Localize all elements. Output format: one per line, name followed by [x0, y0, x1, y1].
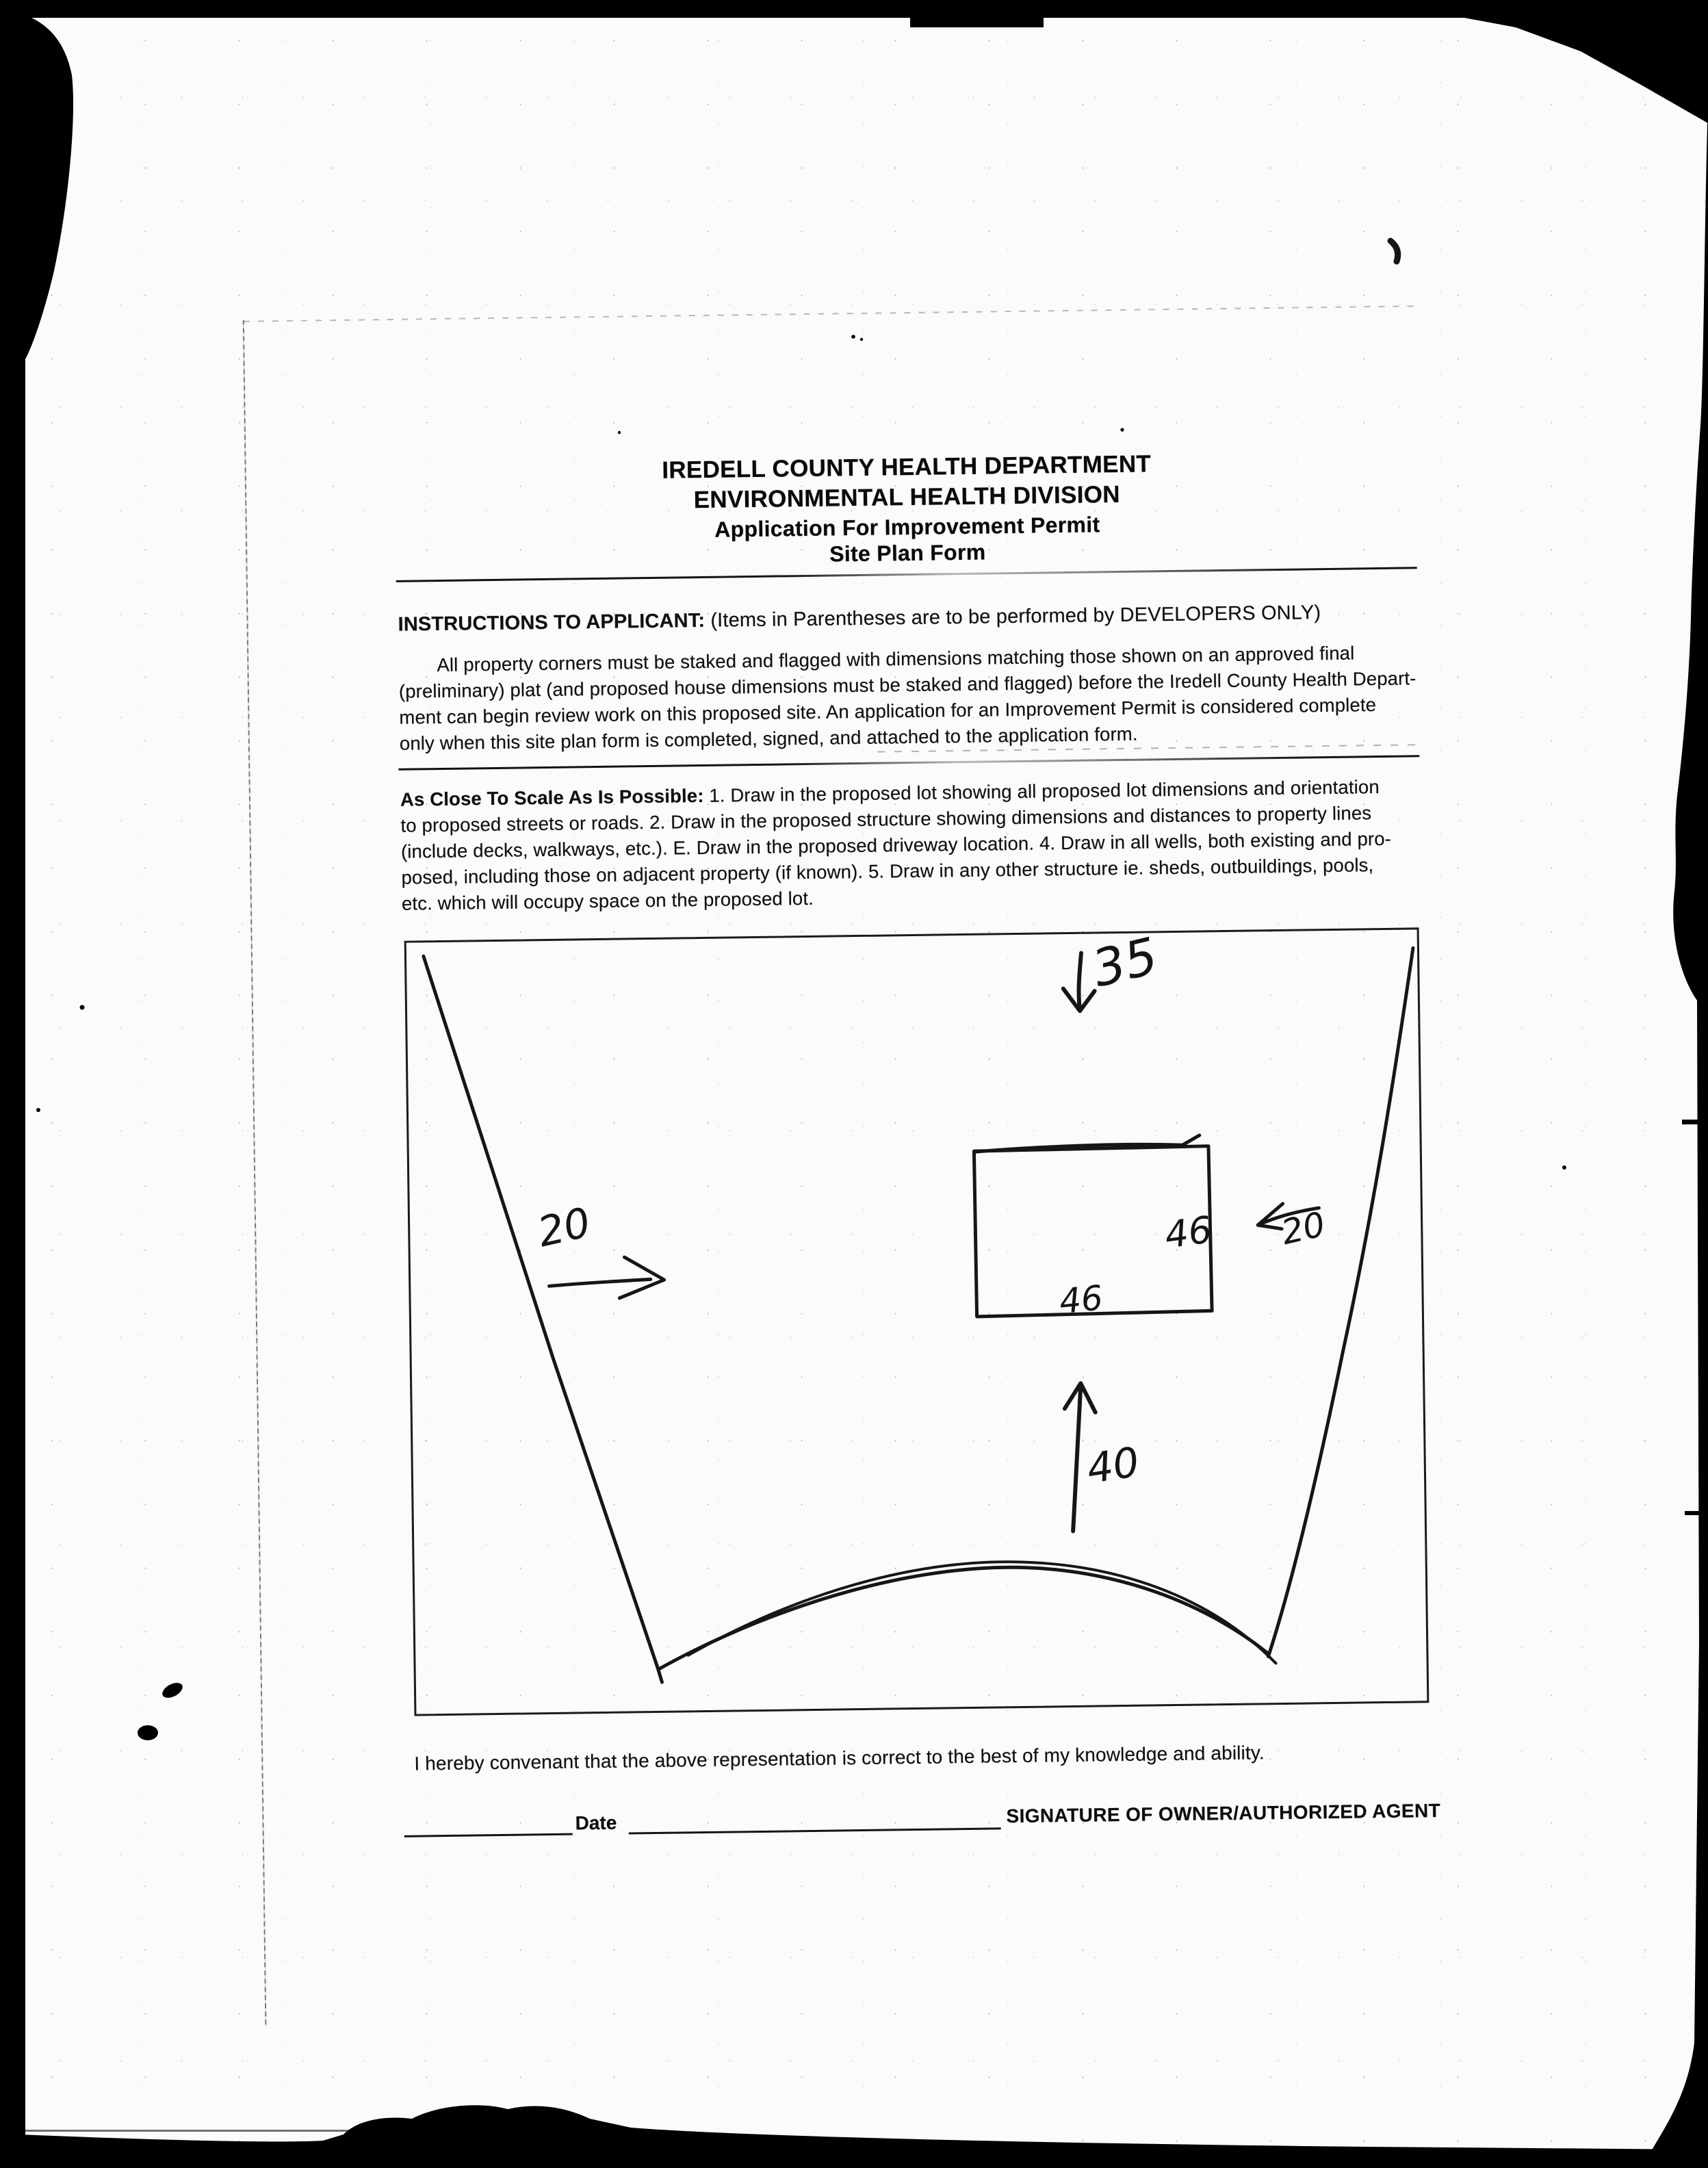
scale-note-lead: As Close To Scale As Is Possible:: [400, 785, 704, 810]
scale-note-line-5: etc. which will occupy space on the prop…: [402, 886, 814, 917]
instructions-heading: INSTRUCTIONS TO APPLICANT: (Items in Par…: [398, 599, 1321, 638]
copy-edge-horizontal-line: [244, 305, 1421, 322]
front-distance-value: 40: [1084, 1439, 1143, 1494]
signature-line-blank: [629, 1827, 1001, 1834]
lot-left-property-line: [424, 953, 662, 1686]
scanned-document: IREDELL COUNTY HEALTH DEPARTMENT ENVIRON…: [0, 0, 1708, 2168]
left-setback-value: 20: [534, 1199, 595, 1256]
date-line-blank: [404, 1833, 573, 1837]
divider-rule-middle: [398, 755, 1419, 771]
instructions-heading-lead: INSTRUCTIONS TO APPLICANT:: [398, 610, 705, 636]
right-setback-value: 20: [1278, 1204, 1329, 1252]
top-setback-value: 35: [1087, 929, 1163, 998]
top-setback-arrow: [1063, 953, 1095, 1011]
copy-edge-vertical-line: [243, 320, 267, 2026]
site-plan-sketch: 35 20 20 46 46 40: [406, 929, 1427, 1714]
left-setback-arrow: [549, 1256, 664, 1299]
lot-front-curve-1: [657, 1564, 1267, 1669]
covenant-statement: I hereby convenant that the above repres…: [414, 1740, 1265, 1777]
signature-of-owner-label: SIGNATURE OF OWNER/AUTHORIZED AGENT: [1006, 1800, 1440, 1827]
form-page: IREDELL COUNTY HEALTH DEPARTMENT ENVIRON…: [0, 0, 1708, 2168]
house-width-value: 46: [1057, 1278, 1104, 1321]
house-depth-value: 46: [1162, 1208, 1214, 1257]
site-plan-drawing-area: 35 20 20 46 46 40: [404, 927, 1429, 1716]
date-label: Date: [575, 1812, 617, 1835]
instructions-heading-rest: (Items in Parentheses are to be performe…: [705, 602, 1321, 632]
lot-right-property-line: [1259, 948, 1423, 1656]
